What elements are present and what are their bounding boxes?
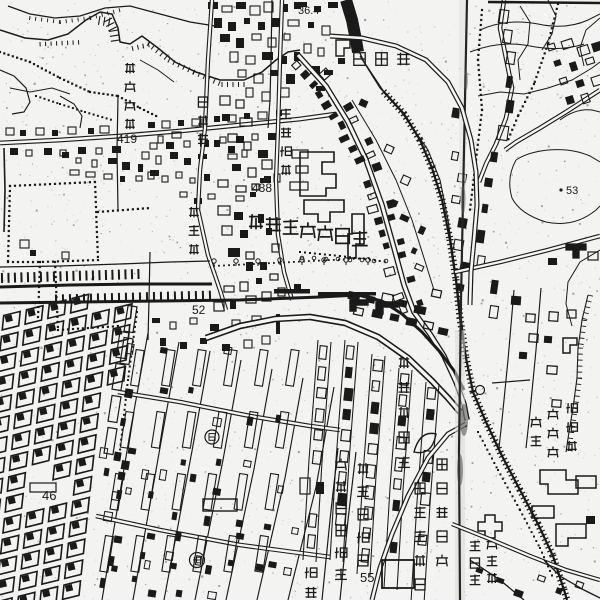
- svg-text:36.4: 36.4: [298, 5, 319, 17]
- svg-text:52: 52: [192, 303, 206, 317]
- svg-text:46: 46: [42, 488, 56, 503]
- svg-text:419: 419: [117, 132, 137, 146]
- svg-text:488: 488: [252, 181, 272, 195]
- svg-text:53: 53: [566, 185, 578, 197]
- svg-text:55: 55: [360, 570, 374, 585]
